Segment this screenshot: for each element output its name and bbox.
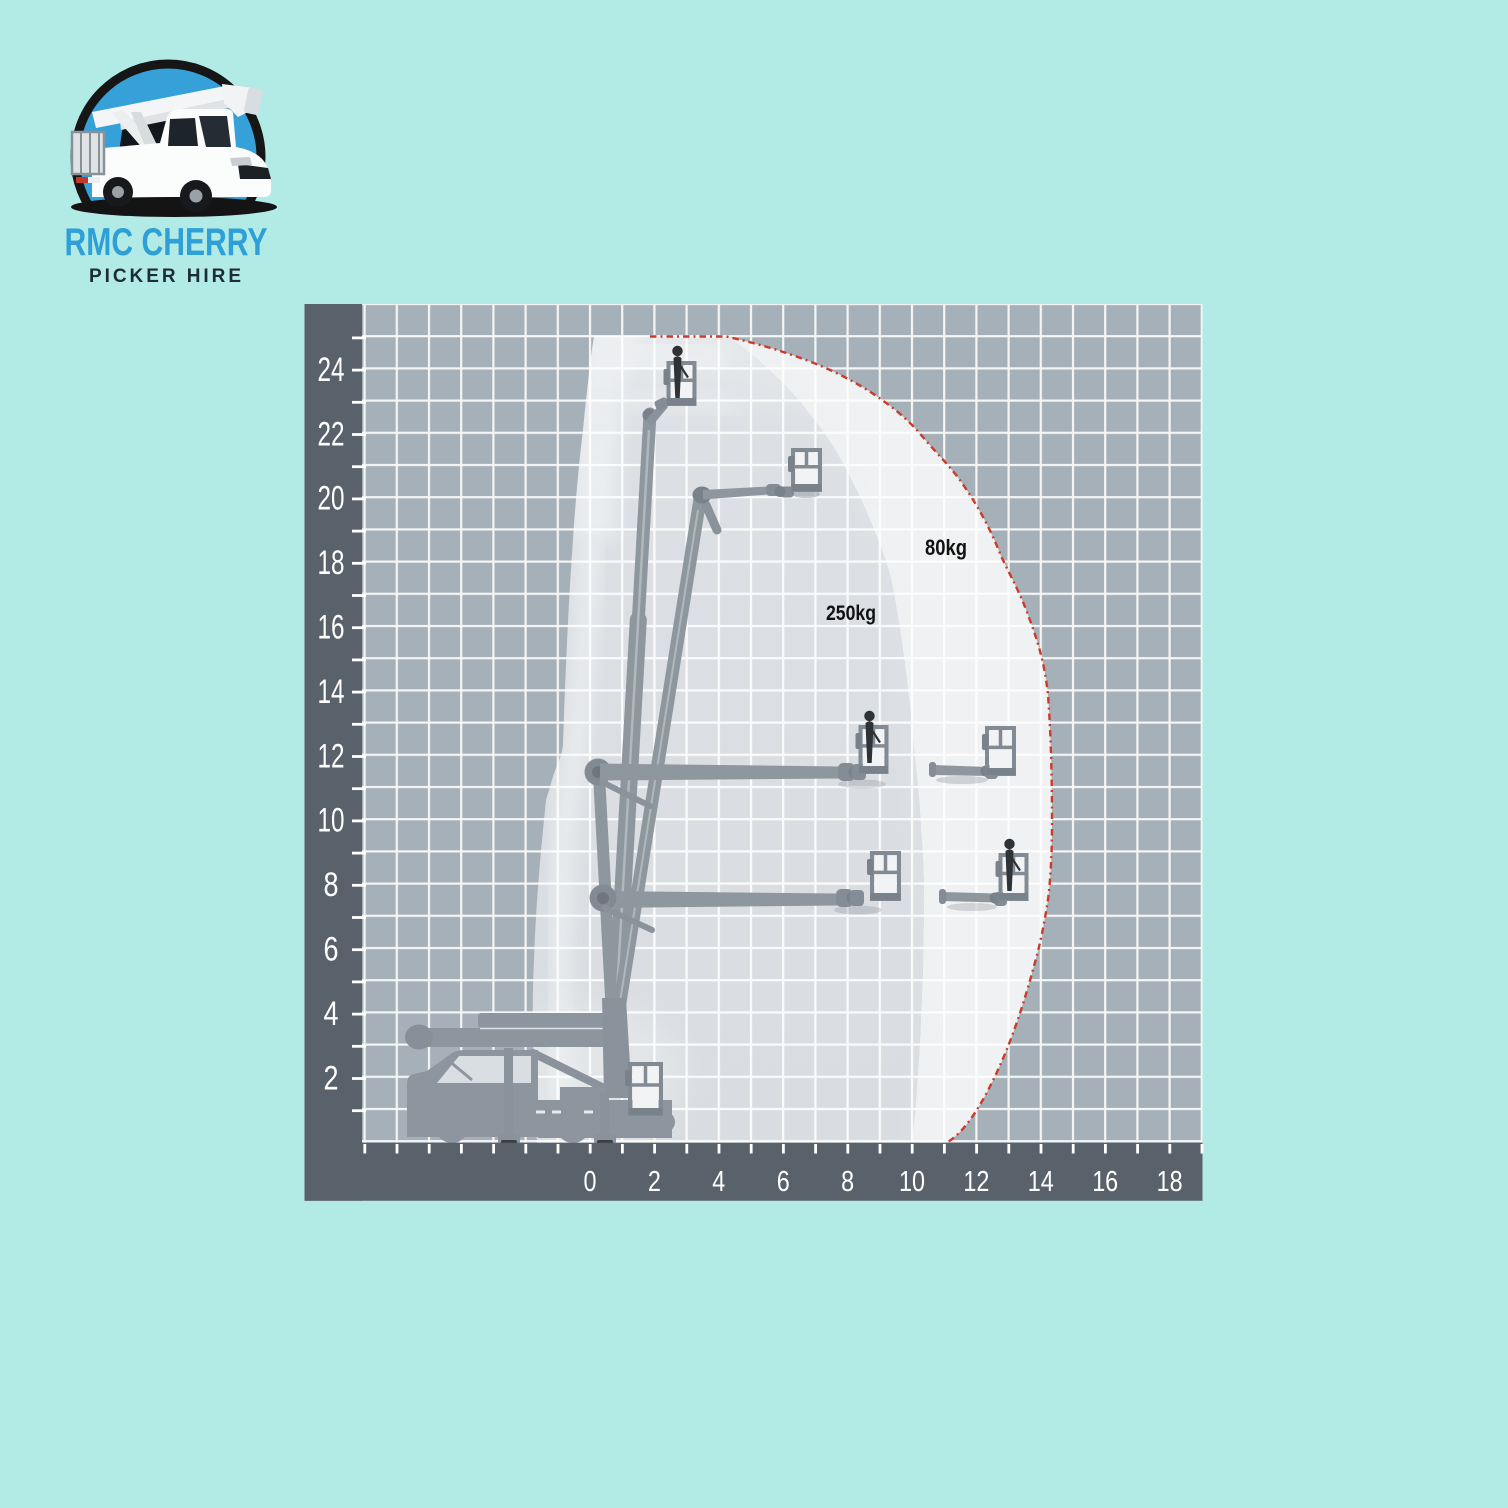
svg-text:14: 14 — [1028, 1166, 1054, 1198]
svg-text:80kg: 80kg — [925, 535, 967, 560]
svg-text:6: 6 — [777, 1166, 790, 1198]
svg-text:24: 24 — [318, 351, 345, 389]
svg-text:8: 8 — [324, 866, 339, 904]
svg-text:18: 18 — [1157, 1166, 1183, 1198]
svg-text:16: 16 — [1092, 1166, 1118, 1198]
svg-text:2: 2 — [648, 1166, 661, 1198]
svg-text:14: 14 — [318, 673, 345, 711]
svg-text:4: 4 — [324, 995, 339, 1033]
svg-text:0: 0 — [584, 1166, 597, 1198]
svg-text:10: 10 — [899, 1166, 925, 1198]
svg-text:10: 10 — [318, 802, 345, 840]
svg-text:20: 20 — [318, 480, 345, 518]
svg-text:22: 22 — [318, 415, 345, 453]
svg-text:6: 6 — [324, 931, 339, 969]
svg-text:8: 8 — [841, 1166, 854, 1198]
svg-text:250kg: 250kg — [826, 602, 876, 625]
svg-text:18: 18 — [318, 544, 345, 582]
svg-text:12: 12 — [318, 737, 345, 775]
svg-text:16: 16 — [318, 609, 345, 647]
svg-text:RMC CHERRY: RMC CHERRY — [65, 221, 268, 264]
svg-text:12: 12 — [963, 1166, 989, 1198]
svg-text:4: 4 — [712, 1166, 725, 1198]
svg-text:2: 2 — [324, 1059, 339, 1097]
